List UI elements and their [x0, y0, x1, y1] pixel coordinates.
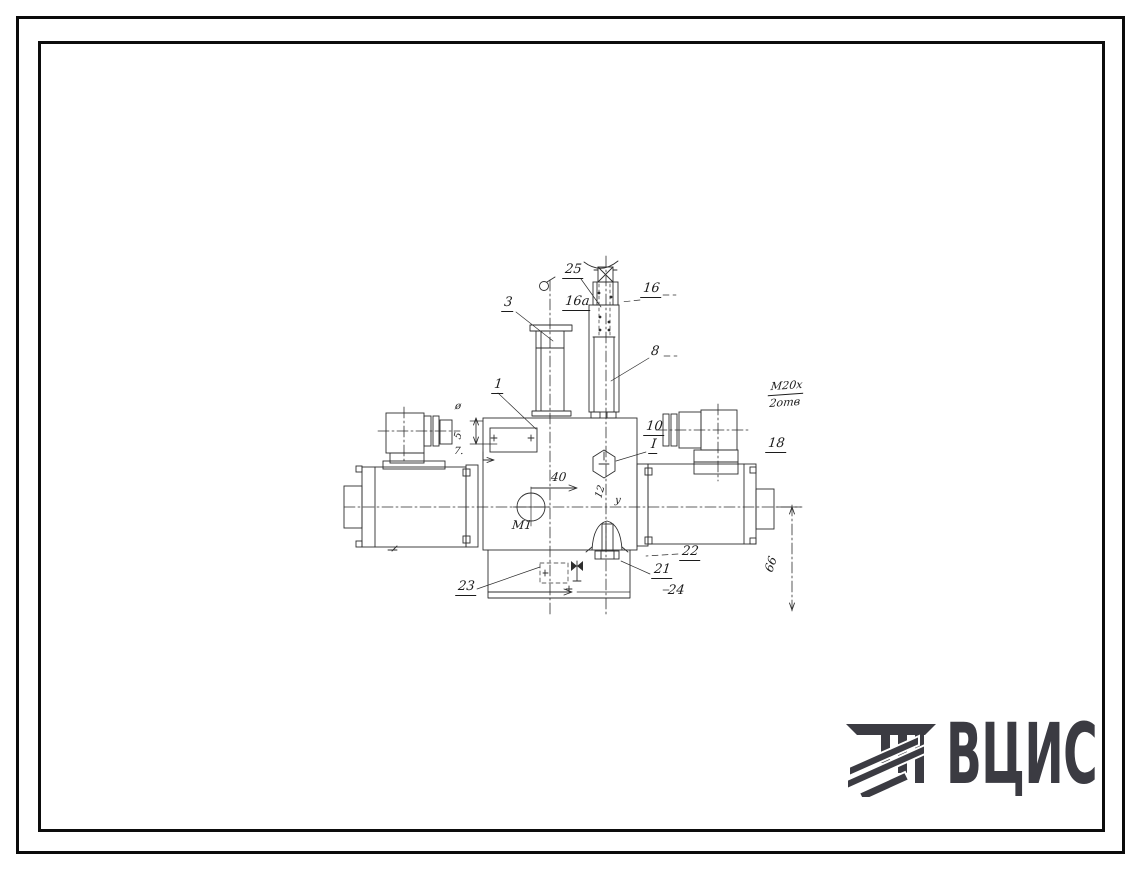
small-dimension	[470, 418, 497, 463]
view-label-I: I	[648, 438, 659, 454]
fitting-ports	[598, 292, 613, 332]
callout-10: 10	[643, 420, 665, 436]
logo-text: ВЦИС	[946, 714, 1097, 794]
dim-7-label: 7.	[453, 447, 464, 457]
vcis-logo: ВЦИС	[845, 720, 1077, 794]
callout-1: 1	[491, 378, 505, 394]
mark-y-label: у	[614, 496, 621, 506]
anchor-bolt	[586, 521, 628, 559]
leader-lines	[477, 279, 650, 589]
top-rod-fitting	[584, 261, 619, 418]
thread-note: М20х 2отв	[766, 378, 805, 411]
callout-16: 16	[640, 282, 662, 298]
thread-note-bottom: 2отв	[766, 394, 803, 411]
dim-66	[777, 507, 801, 610]
callout-8: 8	[650, 345, 660, 358]
callout-23: 23	[455, 580, 477, 596]
callout-18: 18	[765, 437, 787, 453]
dim-40-label: 40	[550, 471, 567, 483]
callout-21: 21	[651, 563, 673, 579]
callout-16a: 16а	[562, 295, 592, 311]
column-with-diagonal-stripes-icon	[845, 723, 937, 797]
phi-mark: ø	[454, 402, 461, 412]
callout-22: 22	[679, 545, 701, 561]
drawing-sheet: 25 16 16а 3 8 1 10 I 18 22 21 24 23 40 М…	[0, 0, 1139, 869]
callout-25: 25	[562, 263, 584, 279]
callout-24: 24	[667, 584, 685, 597]
position-marker	[540, 277, 556, 291]
port-M1-label: М1	[511, 519, 532, 531]
base-plate	[488, 550, 630, 598]
callout-3: 3	[501, 296, 515, 312]
main-block	[483, 418, 637, 550]
top-cylinder	[530, 325, 572, 416]
